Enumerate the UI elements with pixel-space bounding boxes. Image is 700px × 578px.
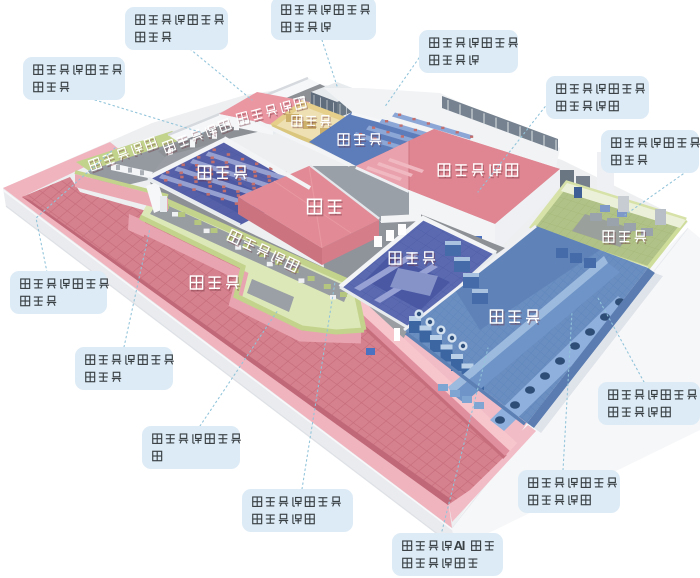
svg-text:I: I [462,538,466,553]
